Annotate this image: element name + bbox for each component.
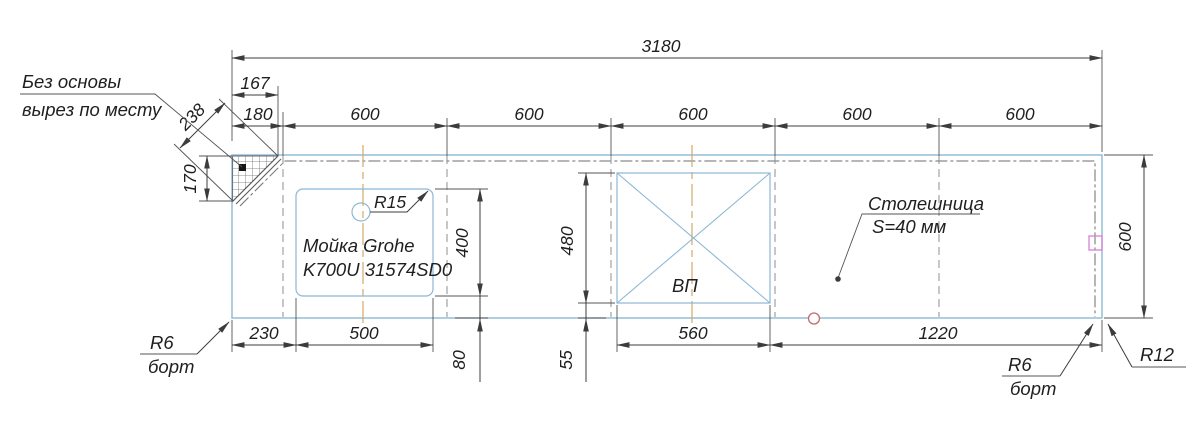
dim-text-600-right: 600 [1115,222,1135,251]
countertop-leader-dot [835,276,841,282]
drawing-canvas: R15 Мойка Grohe K700U 31574SD0 ВП [0,0,1200,421]
sink-label-line1: Мойка Grohe [303,235,415,256]
dim-text-180: 180 [243,104,272,124]
dim-text-500: 500 [349,323,378,343]
sink-cutout: R15 Мойка Grohe K700U 31574SD0 [296,189,453,296]
dim-text-1220: 1220 [919,323,958,343]
corner-note-line2: вырез по месту [22,99,163,120]
edge-left-radius-label: R6 [150,332,174,353]
edge-left-leader [197,322,229,354]
dimension-lines [180,58,1144,382]
dim-text-600-1: 600 [350,104,379,124]
extension-lines [174,50,1153,352]
edge-left-label: борт [148,356,194,377]
red-circle-marker [809,313,820,324]
dim-text-480: 480 [557,226,577,255]
edge-right-leader [1060,324,1093,376]
dim-text-400: 400 [452,228,472,257]
corner-radius-label: R12 [1140,344,1175,365]
dim-text-600-2: 600 [514,104,543,124]
cooktop-label: ВП [672,275,698,296]
countertop-label-line2: S=40 мм [872,216,947,237]
dim-text-80: 80 [449,350,469,370]
dim-text-600-3: 600 [678,104,707,124]
dim-text-170: 170 [180,164,200,193]
dim-text-55: 55 [556,350,576,370]
dim-text-600-5: 600 [1005,104,1034,124]
dim-text-600-4: 600 [842,104,871,124]
countertop-label-line1: Столешница [868,193,984,214]
corner-cutout [233,156,281,204]
dim-text-3180: 3180 [642,36,681,56]
edge-right-label: борт [1010,378,1056,399]
edge-right-radius-label: R6 [1008,354,1032,375]
faucet-hole [352,203,370,221]
dim-text-560: 560 [678,323,707,343]
sink-hole-radius-label: R15 [374,192,406,212]
sink-label-line2: K700U 31574SD0 [303,259,453,280]
dimension-texts: 3180 167 180 600 600 600 600 600 238 170… [174,36,1135,370]
corner-radius-leader [1108,324,1132,367]
corner-note-line1: Без основы [22,71,122,92]
technical-drawing-countertop: R15 Мойка Grohe K700U 31574SD0 ВП [0,0,1200,421]
dim-text-167: 167 [240,73,270,93]
dim-text-238: 238 [174,99,210,135]
dim-text-230: 230 [248,323,278,343]
cooktop-cutout: ВП [617,173,770,303]
